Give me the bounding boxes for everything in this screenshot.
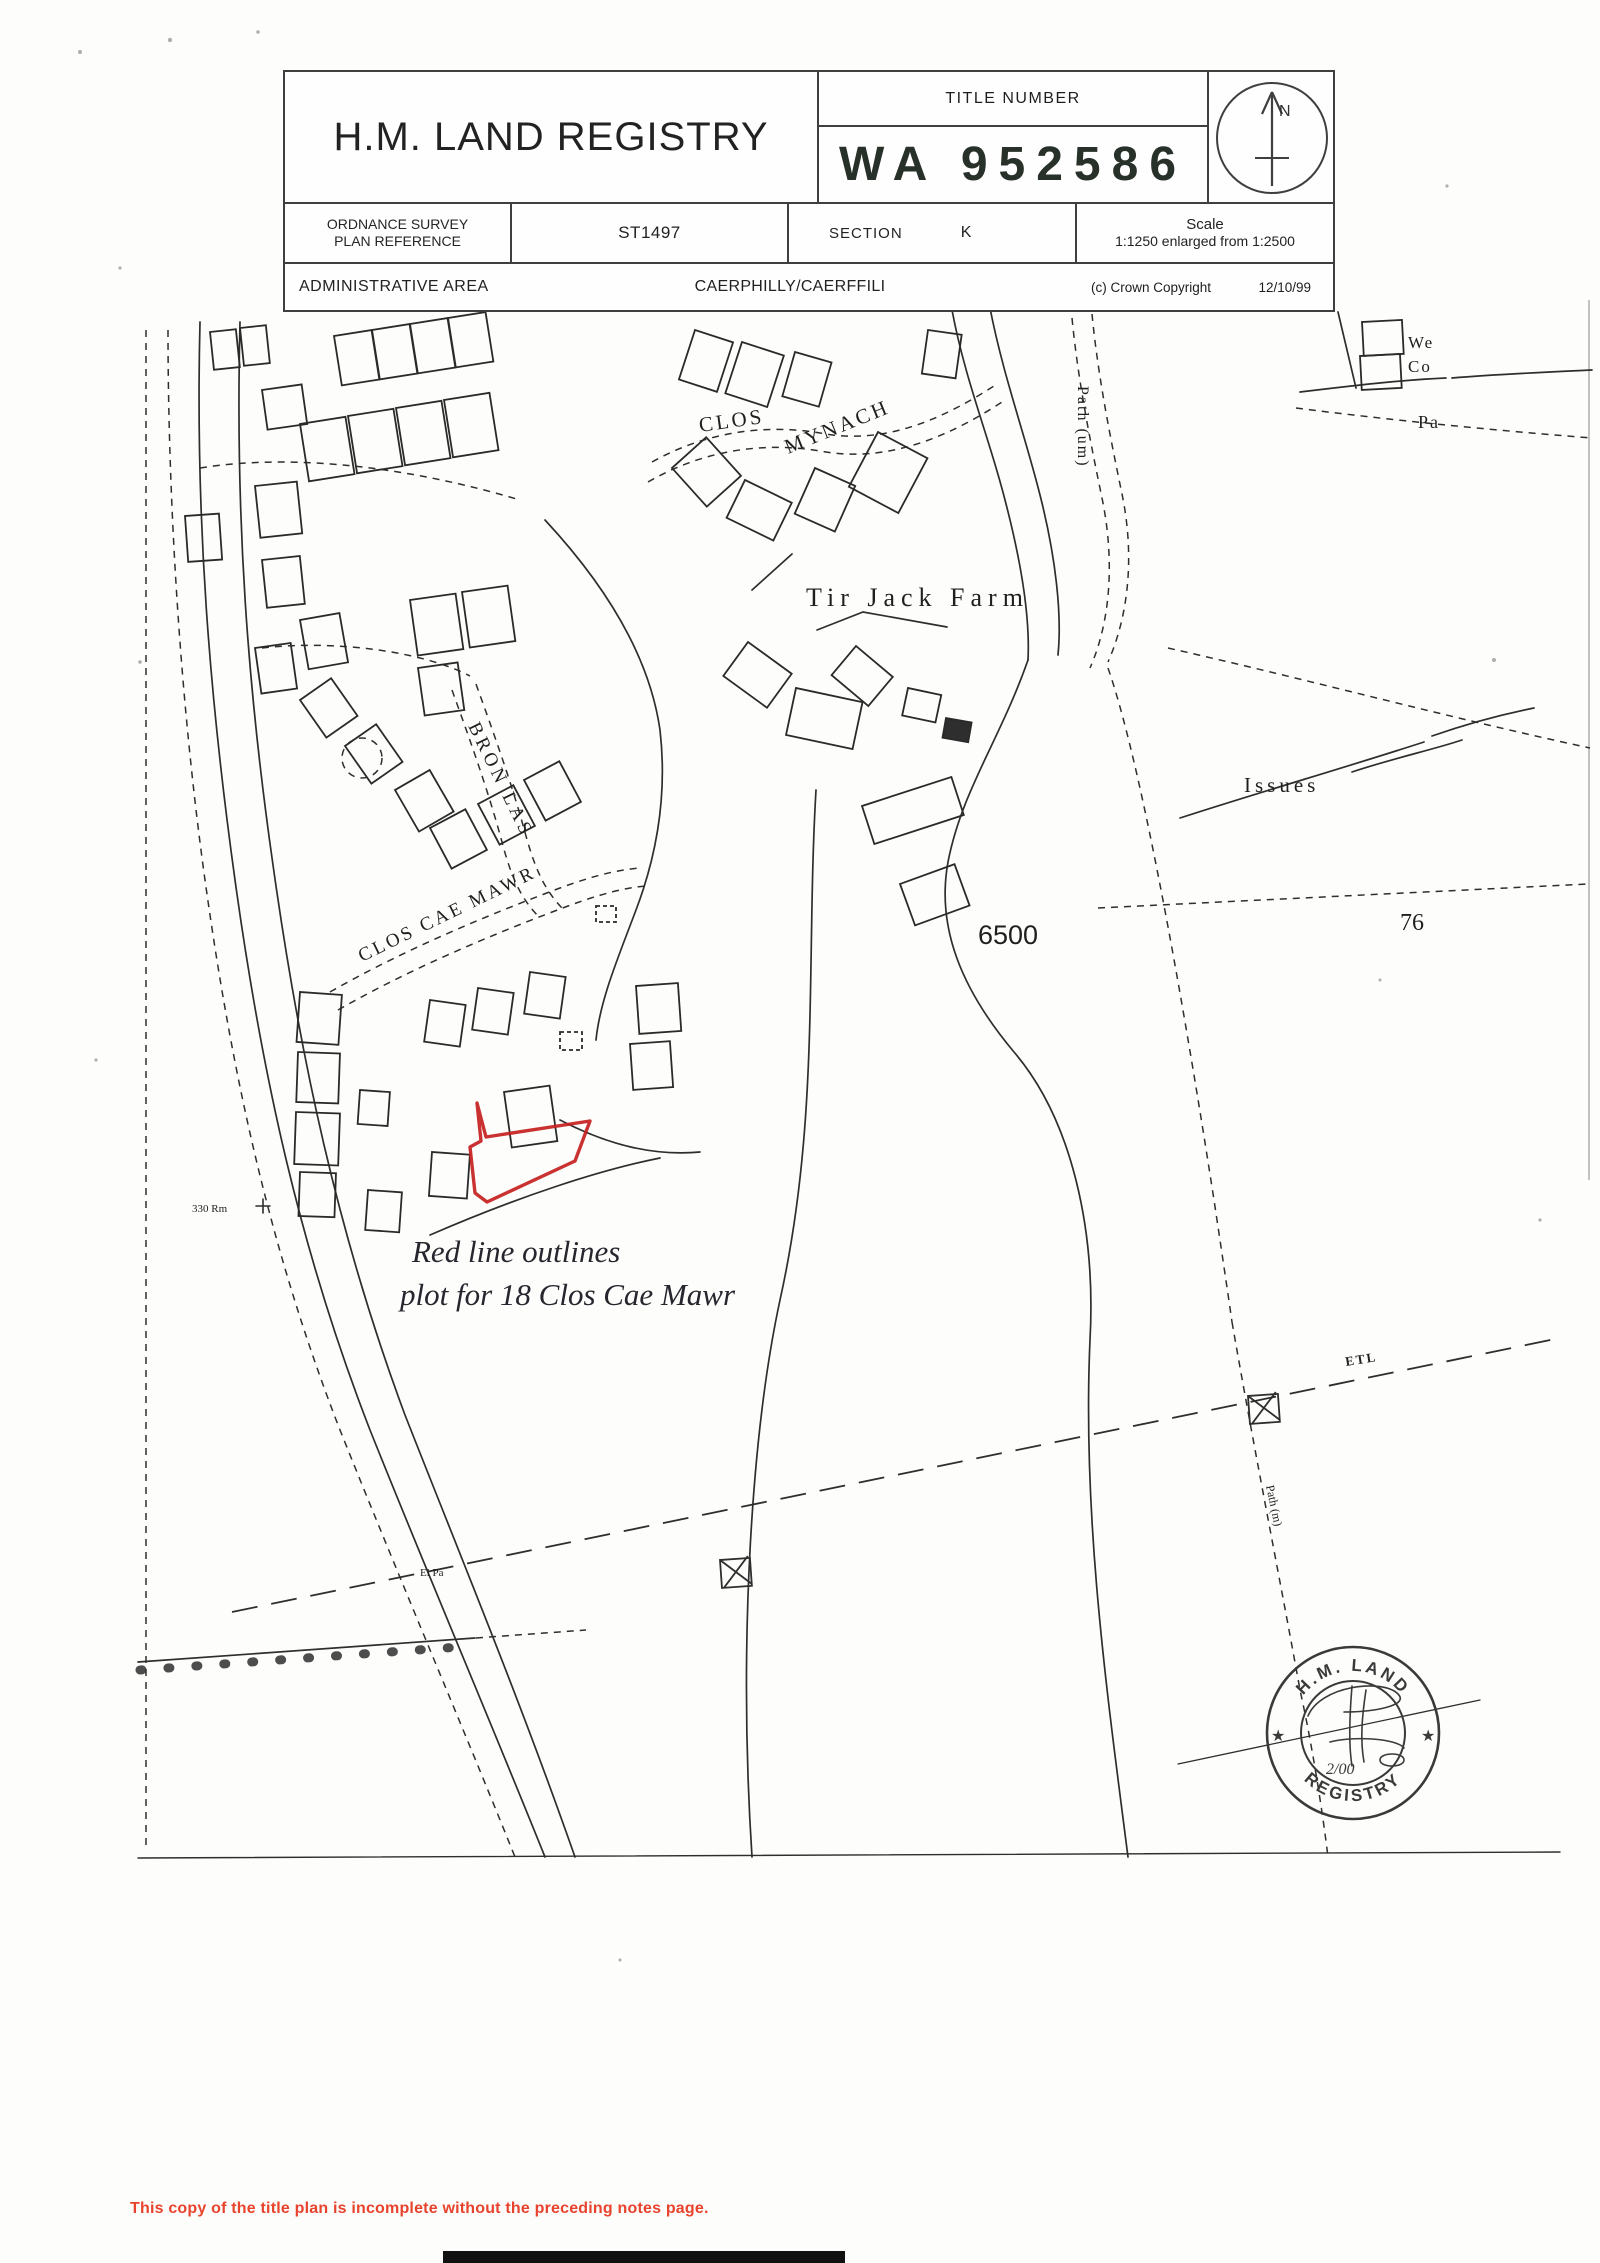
parcel-number-6500: 6500 [978,920,1038,950]
scale-value: 1:1250 enlarged from 1:2500 [1115,233,1295,250]
registry-stamp: H.M. LAND REGISTRY ★ ★ 2/00 [1267,1647,1439,1819]
section-label: SECTION [829,225,903,242]
scale-label: Scale [1186,216,1224,233]
bottom-black-bar [443,2251,845,2263]
we-label: We [1408,333,1434,352]
pa-label: Pa [1418,412,1440,432]
os-map: CLOS MYNACH Tir Jack Farm BRON LAS CLOS … [0,0,1600,2263]
bench-mark-label: 330 Rm [192,1203,228,1215]
farm-label: Tir Jack Farm [806,583,1029,612]
registry-title: H.M. LAND REGISTRY [333,115,768,160]
os-ref-line1: ORDNANCE SURVEY [327,216,468,233]
header-table: H.M. LAND REGISTRY TITLE NUMBER WA 95258… [283,70,1335,312]
title-number-label: TITLE NUMBER [819,72,1207,127]
map-solid-linework [138,308,1592,1858]
os-plan-reference-cell: ORDNANCE SURVEY PLAN REFERENCE [285,202,510,262]
street-label-bron-las: BRON LAS [464,719,538,841]
street-label-clos: CLOS [697,404,765,437]
etl-label: ETL [1344,1349,1378,1369]
street-label-mynach: MYNACH [781,395,893,459]
path-um-label: Path (um) [1074,386,1091,468]
section-cell: SECTION K [787,202,1075,262]
title-number-value: WA 952586 [819,127,1207,202]
stamp-star-left-icon: ★ [1271,1728,1285,1745]
os-ref-line2: PLAN REFERENCE [334,233,461,250]
stamp-note: 2/00 [1326,1761,1354,1778]
red-annotation-line2: plot for 18 Clos Cae Mawr [398,1277,736,1312]
north-arrow-icon: N [1209,72,1335,202]
copyright-label: (c) Crown Copyright [1091,280,1211,295]
os-ref-value: ST1497 [618,223,681,243]
stamp-star-right-icon: ★ [1421,1728,1435,1745]
map-dashed-linework [146,314,1592,1857]
red-plot-outline [470,1103,590,1202]
admin-area-value: CAERPHILLY/CAERFFILI [695,278,886,296]
administrative-area-cell: ADMINISTRATIVE AREA CAERPHILLY/CAERFFILI [285,262,1075,310]
title-plan-page: CLOS MYNACH Tir Jack Farm BRON LAS CLOS … [0,0,1600,2263]
co-label: Co [1408,357,1432,376]
parcel-number-76: 76 [1400,910,1424,936]
el-pa-label: El Pa [420,1567,444,1579]
north-arrow-cell: N [1207,72,1333,202]
path-m-label: Path (m) [1263,1484,1285,1528]
red-annotation-line1: Red line outlines [411,1234,620,1269]
title-number-cell: TITLE NUMBER WA 952586 [817,72,1207,202]
copyright-date: 12/10/99 [1258,280,1311,295]
copyright-cell: (c) Crown Copyright 12/10/99 [1075,262,1333,310]
footer-warning-text: This copy of the title plan is incomplet… [130,2200,709,2218]
issues-label: Issues [1244,773,1319,797]
scale-cell: Scale 1:1250 enlarged from 1:2500 [1075,202,1333,262]
section-value: K [961,224,973,242]
admin-area-label: ADMINISTRATIVE AREA [299,278,489,296]
map-labels: CLOS MYNACH Tir Jack Farm BRON LAS CLOS … [192,333,1440,1579]
registry-title-cell: H.M. LAND REGISTRY [285,72,817,202]
north-letter: N [1279,103,1291,120]
os-plan-reference-value-cell: ST1497 [510,202,787,262]
street-label-clos-cae-mawr: CLOS CAE MAWR [355,862,539,966]
